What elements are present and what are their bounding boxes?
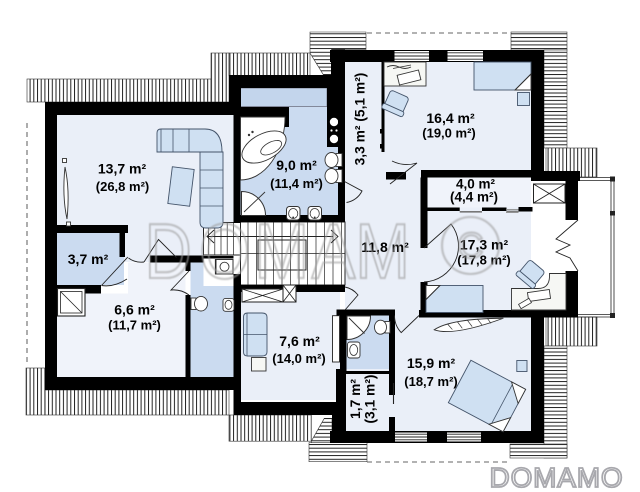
svg-text:(19,0 m²): (19,0 m²) [422, 126, 475, 141]
svg-text:D: D [144, 209, 191, 296]
svg-text:13,7 m²: 13,7 m² [98, 161, 147, 177]
svg-text:M: M [255, 209, 310, 296]
svg-text:(18,7 m²): (18,7 m²) [404, 374, 457, 389]
svg-text:6,6 m²: 6,6 m² [114, 302, 155, 318]
svg-text:7,6 m²: 7,6 m² [279, 333, 320, 349]
svg-text:M: M [355, 209, 410, 296]
svg-text:C: C [458, 225, 484, 266]
svg-text:(11,7 m²): (11,7 m²) [108, 318, 161, 333]
svg-text:A: A [312, 209, 356, 296]
svg-text:1,7 m²: 1,7 m² [348, 379, 363, 419]
svg-text:15,9 m²: 15,9 m² [407, 355, 456, 371]
svg-text:(4,4 m²): (4,4 m²) [450, 189, 498, 204]
svg-text:(11,4 m²): (11,4 m²) [270, 176, 323, 191]
svg-text:3,3 m² (5,1 m²): 3,3 m² (5,1 m²) [353, 73, 368, 166]
svg-text:(26,8 m²): (26,8 m²) [96, 179, 149, 194]
svg-text:9,0 m²: 9,0 m² [276, 157, 317, 173]
svg-text:(14,0 m²): (14,0 m²) [272, 351, 325, 366]
svg-text:DOMAMO: DOMAMO [490, 462, 624, 492]
svg-text:3,7 m²: 3,7 m² [68, 251, 109, 267]
svg-text:O: O [199, 209, 250, 296]
svg-text:16,4 m²: 16,4 m² [426, 110, 475, 126]
svg-text:(3,1 m²): (3,1 m²) [363, 374, 378, 423]
